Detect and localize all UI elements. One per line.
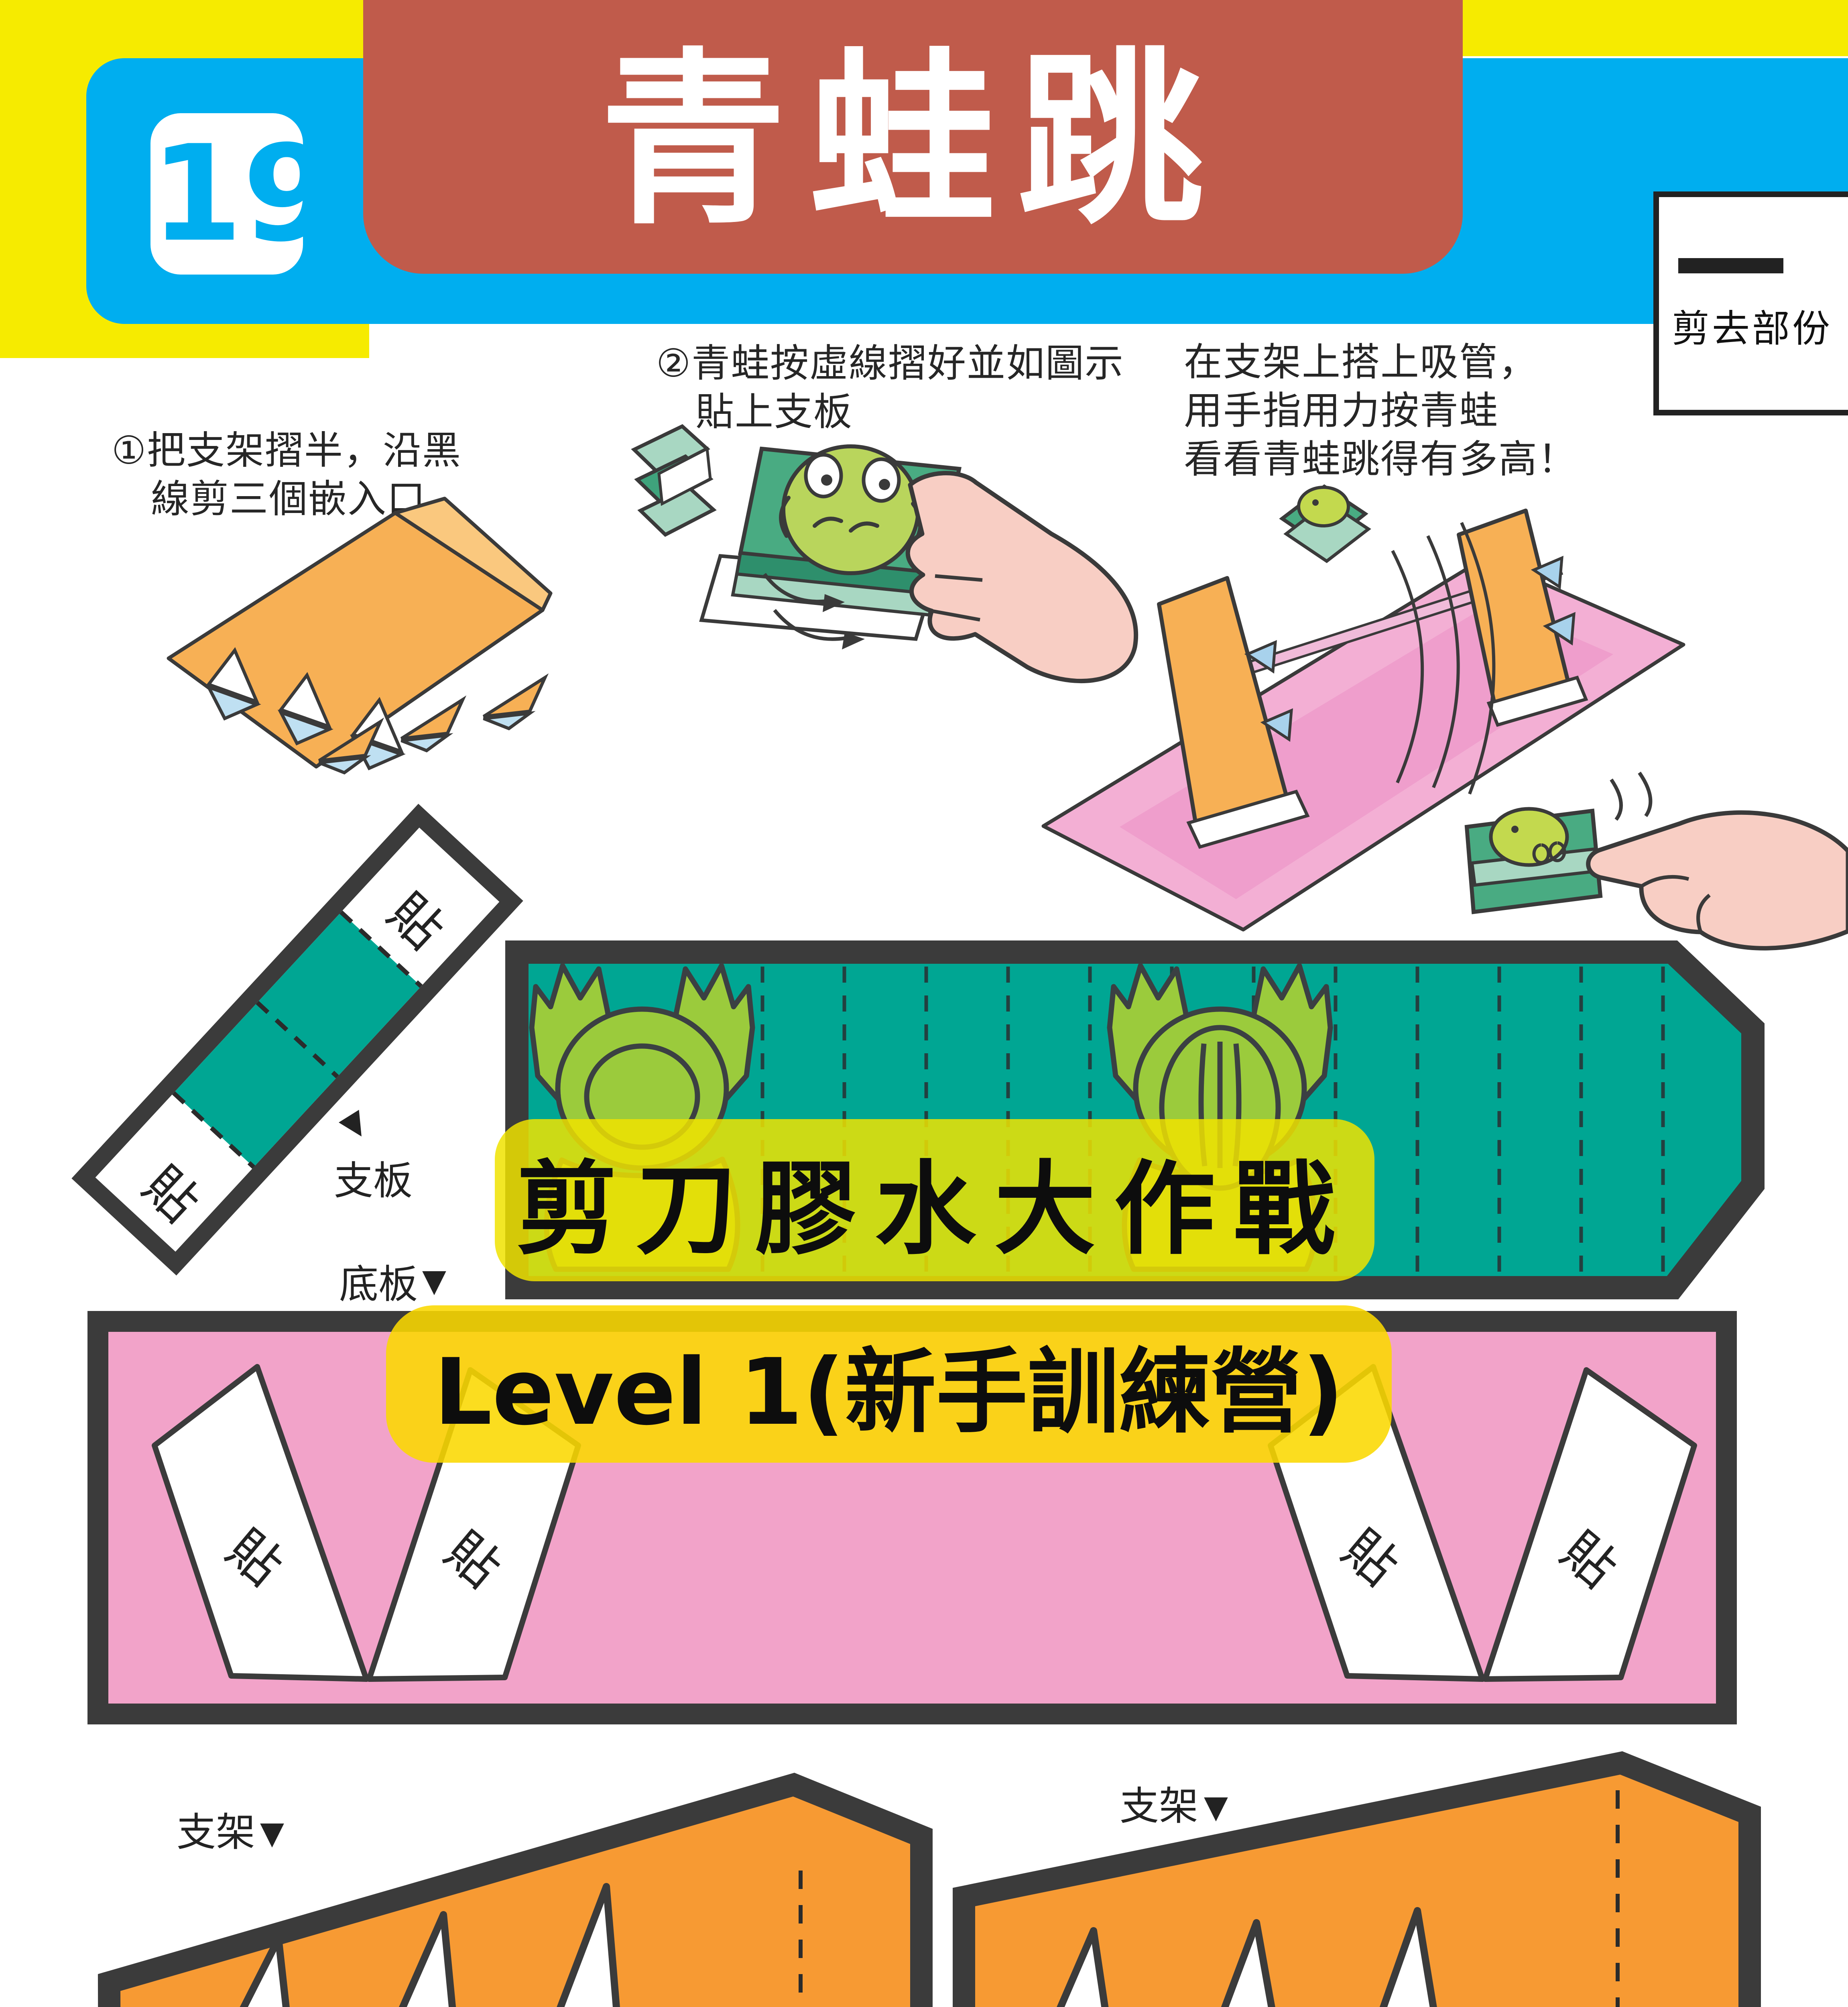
stand-label-left: 支架 bbox=[177, 1800, 255, 1857]
illustration-fold-stand bbox=[169, 499, 551, 773]
hand-icon bbox=[1588, 812, 1848, 948]
template-stand-right bbox=[964, 1763, 1750, 2007]
overlay-banner-2: Level 1(新手訓練營) bbox=[386, 1305, 1392, 1463]
pointer-triangle-icon: ▼ bbox=[422, 1265, 446, 1297]
pointer-triangle-icon: ▼ bbox=[260, 1818, 284, 1849]
support-board-label: 支板 bbox=[334, 1149, 413, 1206]
overlay-banner-1-text: 剪刀膠水大作戰 bbox=[516, 1127, 1353, 1274]
pointer-triangle-icon: ▼ bbox=[1204, 1791, 1228, 1823]
illustration-play-scene bbox=[1043, 486, 1848, 948]
page-graphics bbox=[0, 0, 1848, 2007]
stand-label-right: 支架 bbox=[1120, 1774, 1198, 1831]
overlay-banner-2-text: Level 1(新手訓練營) bbox=[434, 1318, 1344, 1450]
craft-activity-page: { "page": { "number": "19", "title": "青蛙… bbox=[0, 0, 1848, 2007]
illustration-fold-frog bbox=[634, 426, 1136, 681]
cut-triangle-3 bbox=[484, 678, 545, 729]
base-board-label: 底板 bbox=[339, 1252, 418, 1309]
overlay-banner-1: 剪刀膠水大作戰 bbox=[495, 1119, 1374, 1281]
jumping-frog bbox=[1282, 486, 1368, 561]
cut-triangle-2 bbox=[401, 700, 463, 751]
